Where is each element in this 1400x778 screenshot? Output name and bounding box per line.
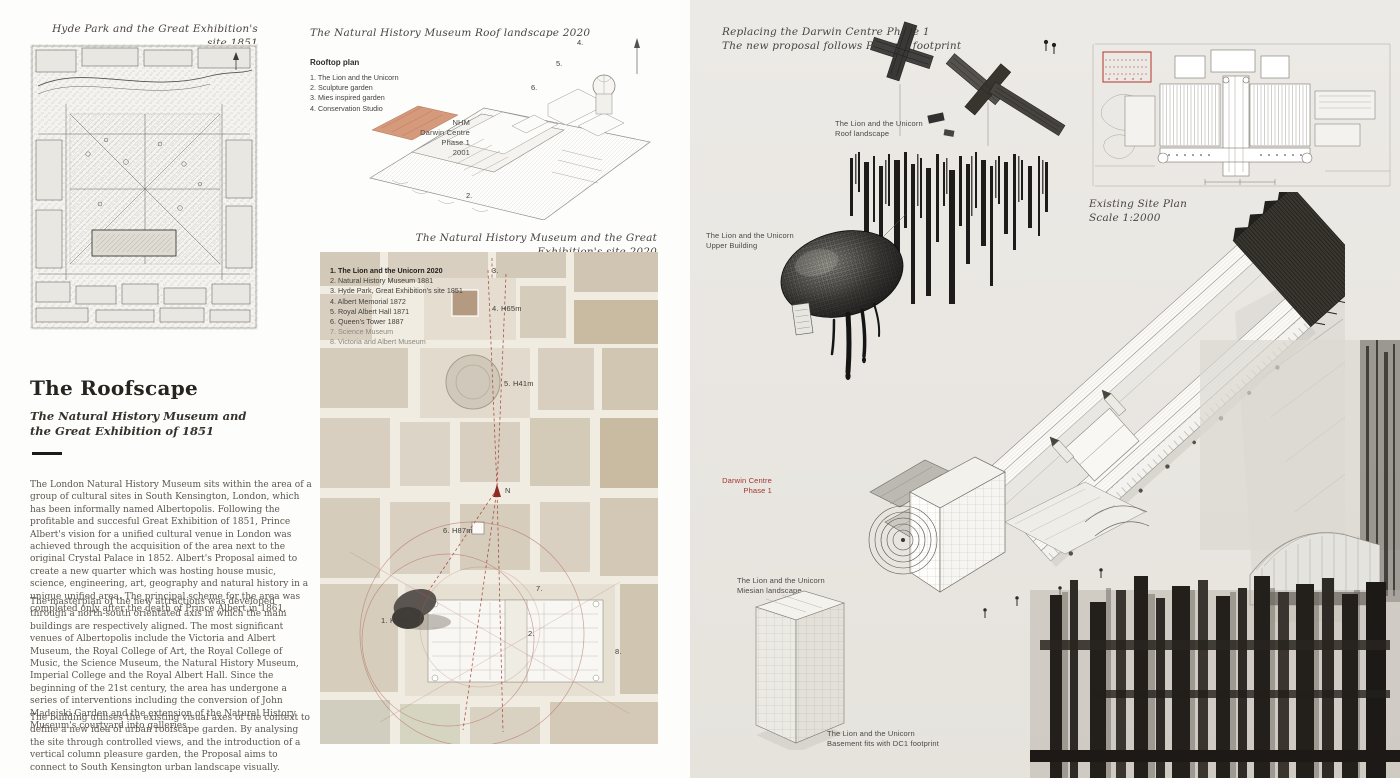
legend-item: 2. Natural History Museum 1881 xyxy=(330,276,520,286)
legend-item: 7. Science Museum xyxy=(330,327,520,337)
existing-site-plan-drawing xyxy=(1085,36,1395,194)
north-letter: N xyxy=(505,486,511,495)
historic-map-drawing xyxy=(30,44,258,330)
map-tag-4: 4. H65m xyxy=(492,304,522,313)
map-tag-8: 8. xyxy=(615,647,622,656)
nhm-darwin-centre-label: NHM Darwin Centre Phase 1 2001 xyxy=(388,118,470,158)
north-arrow-icon xyxy=(493,484,501,497)
map-tag-2: 2. xyxy=(528,629,535,638)
basement-label: The Lion and the Unicorn Basement fits w… xyxy=(827,729,939,749)
legend-item: 6. Queen's Tower 1887 xyxy=(330,317,520,327)
axo-number-6: 6. xyxy=(531,83,537,92)
body-paragraph-1: The London Natural History Museum sits w… xyxy=(30,479,312,615)
axo-number-5: 5. xyxy=(556,59,562,68)
basement-drawing xyxy=(742,585,857,750)
legend-item: 3. Hyde Park, Great Exhibition's site 18… xyxy=(330,286,520,296)
page-subtitle: The Natural History Museum and the Great… xyxy=(30,409,262,439)
body-paragraph-3: The building utilises the existing visua… xyxy=(30,712,312,774)
axo-number-2: 2. xyxy=(466,191,472,200)
map-tag-1: 1. H65m xyxy=(381,616,411,625)
map-tag-7: 7. xyxy=(536,584,543,593)
map-tag-3: 3. xyxy=(492,266,499,275)
title-rule xyxy=(32,452,62,455)
map-tag-5: 5. H41m xyxy=(504,379,534,388)
map-tag-6: 6. H87m xyxy=(443,526,473,535)
darwin-centre-phase1-label: Darwin Centre Phase 1 xyxy=(692,476,772,496)
page-title: The Roofscape xyxy=(30,376,198,400)
presentation-board: Hyde Park and the Great Exhibition's sit… xyxy=(0,0,1400,778)
column-garden-montage xyxy=(1030,340,1400,778)
roof-landscape-label: The Lion and the Unicorn Roof landscape xyxy=(835,119,923,139)
legend-item: 8. Victoria and Albert Museum xyxy=(330,337,520,347)
axo-number-4: 4. xyxy=(577,38,583,47)
